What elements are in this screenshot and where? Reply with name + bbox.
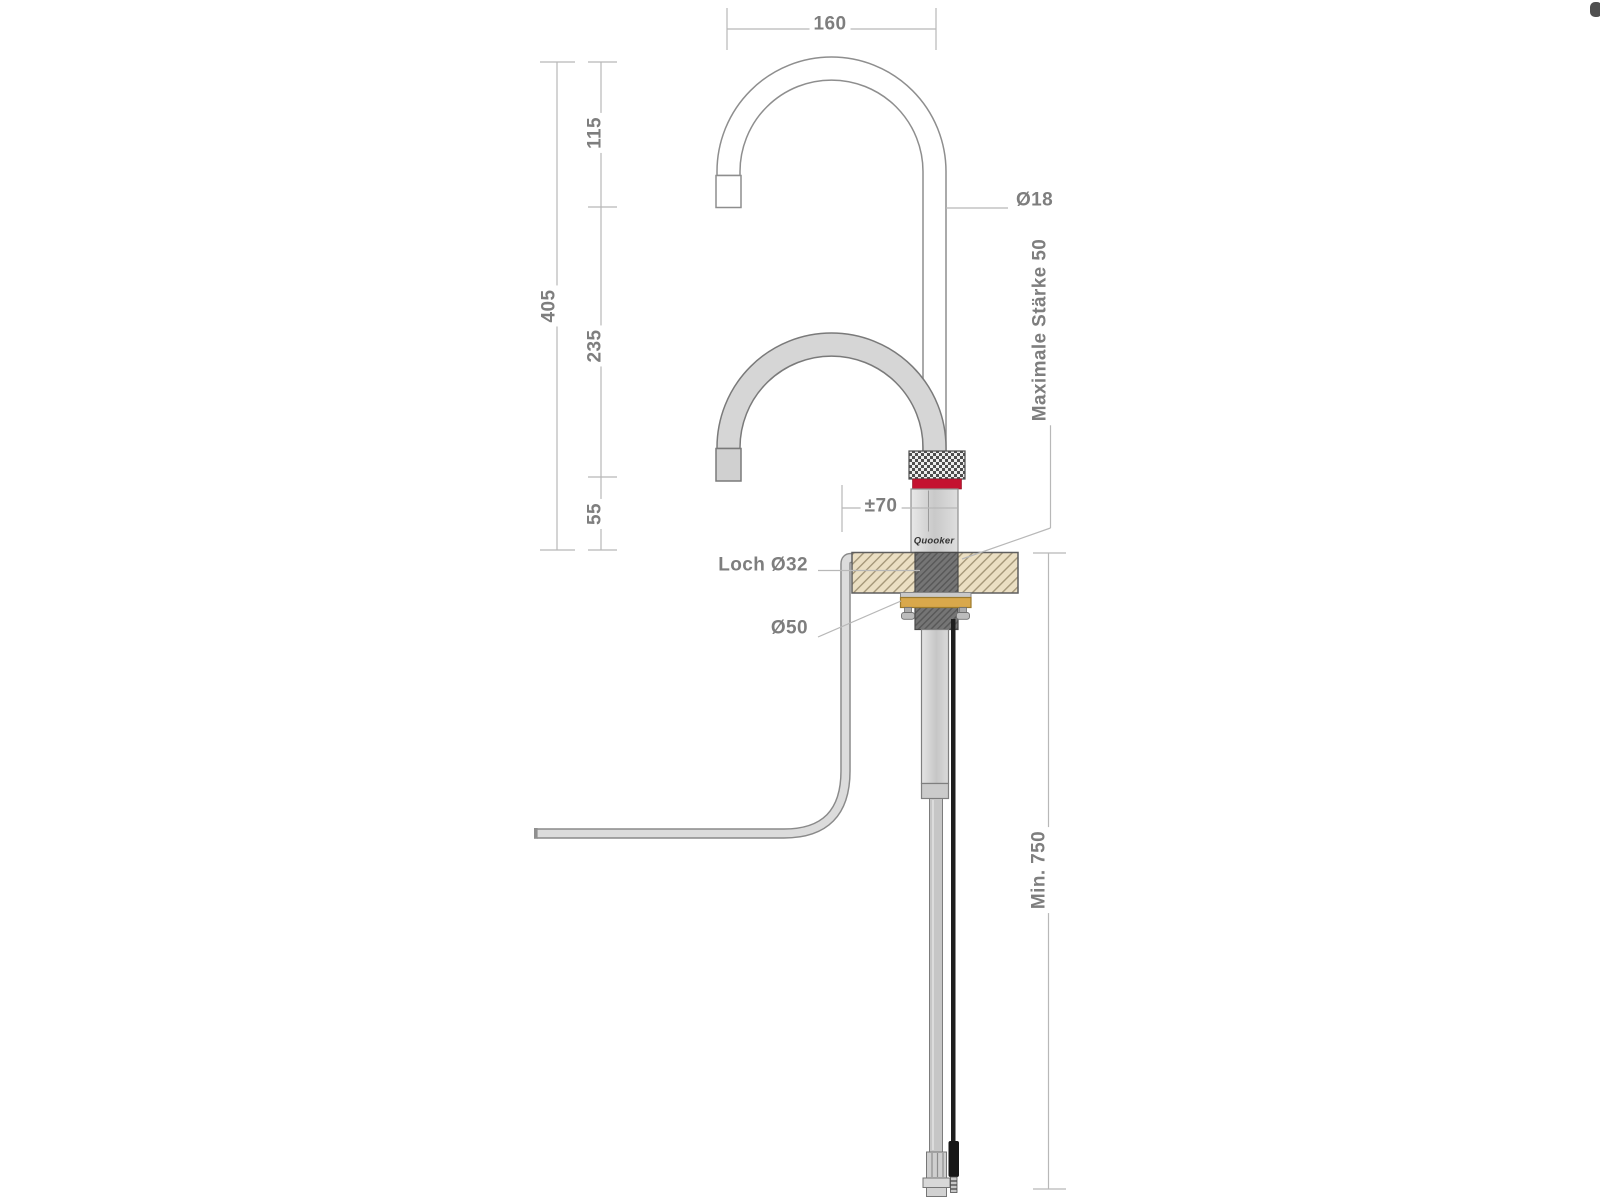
label-min-clearance: Min. 750 [1029,827,1052,913]
mounting-washer [901,593,972,598]
tap-shaft [922,630,949,784]
label-upper-segment: 115 [585,113,608,153]
label-spout-reach: 160 [810,14,851,37]
red-indicator-ring [913,479,962,489]
label-hole-diameter: Loch Ø32 [714,555,812,578]
flexible-hose-outline [537,558,853,834]
label-max-thickness: Maximale Stärke 50 [1030,235,1053,426]
label-swivel-offset: ±70 [861,496,902,519]
threaded-shank [915,553,958,630]
flexible-hose [537,558,853,834]
installation-diagram: 160 405 115 235 55 Ø18 Maximale Stärke 5… [0,0,1600,1200]
power-cable [951,619,956,1143]
mounting-bolt-left [902,608,915,620]
label-flange-diameter: Ø50 [767,618,812,641]
lower-aerator [716,449,741,482]
tube-connector [923,1152,950,1197]
lower-spout [717,333,946,454]
corner-artifact [1590,2,1600,17]
brass-flange [901,598,972,608]
supply-tube [930,799,943,1153]
upper-aerator [716,176,741,208]
knurled-ring [909,451,965,479]
hose-end-cap [534,828,538,839]
shaft-collar [922,784,949,799]
label-middle-segment: 235 [585,326,608,367]
label-spout-diameter: Ø18 [1012,190,1057,213]
faucet-technical-drawing [0,0,1600,1200]
label-lower-segment: 55 [585,499,608,529]
leader-max-thickness [962,424,1051,559]
brand-logo: Quooker [914,536,954,547]
label-total-height: 405 [539,286,562,327]
leader-flange-diameter [818,601,901,637]
